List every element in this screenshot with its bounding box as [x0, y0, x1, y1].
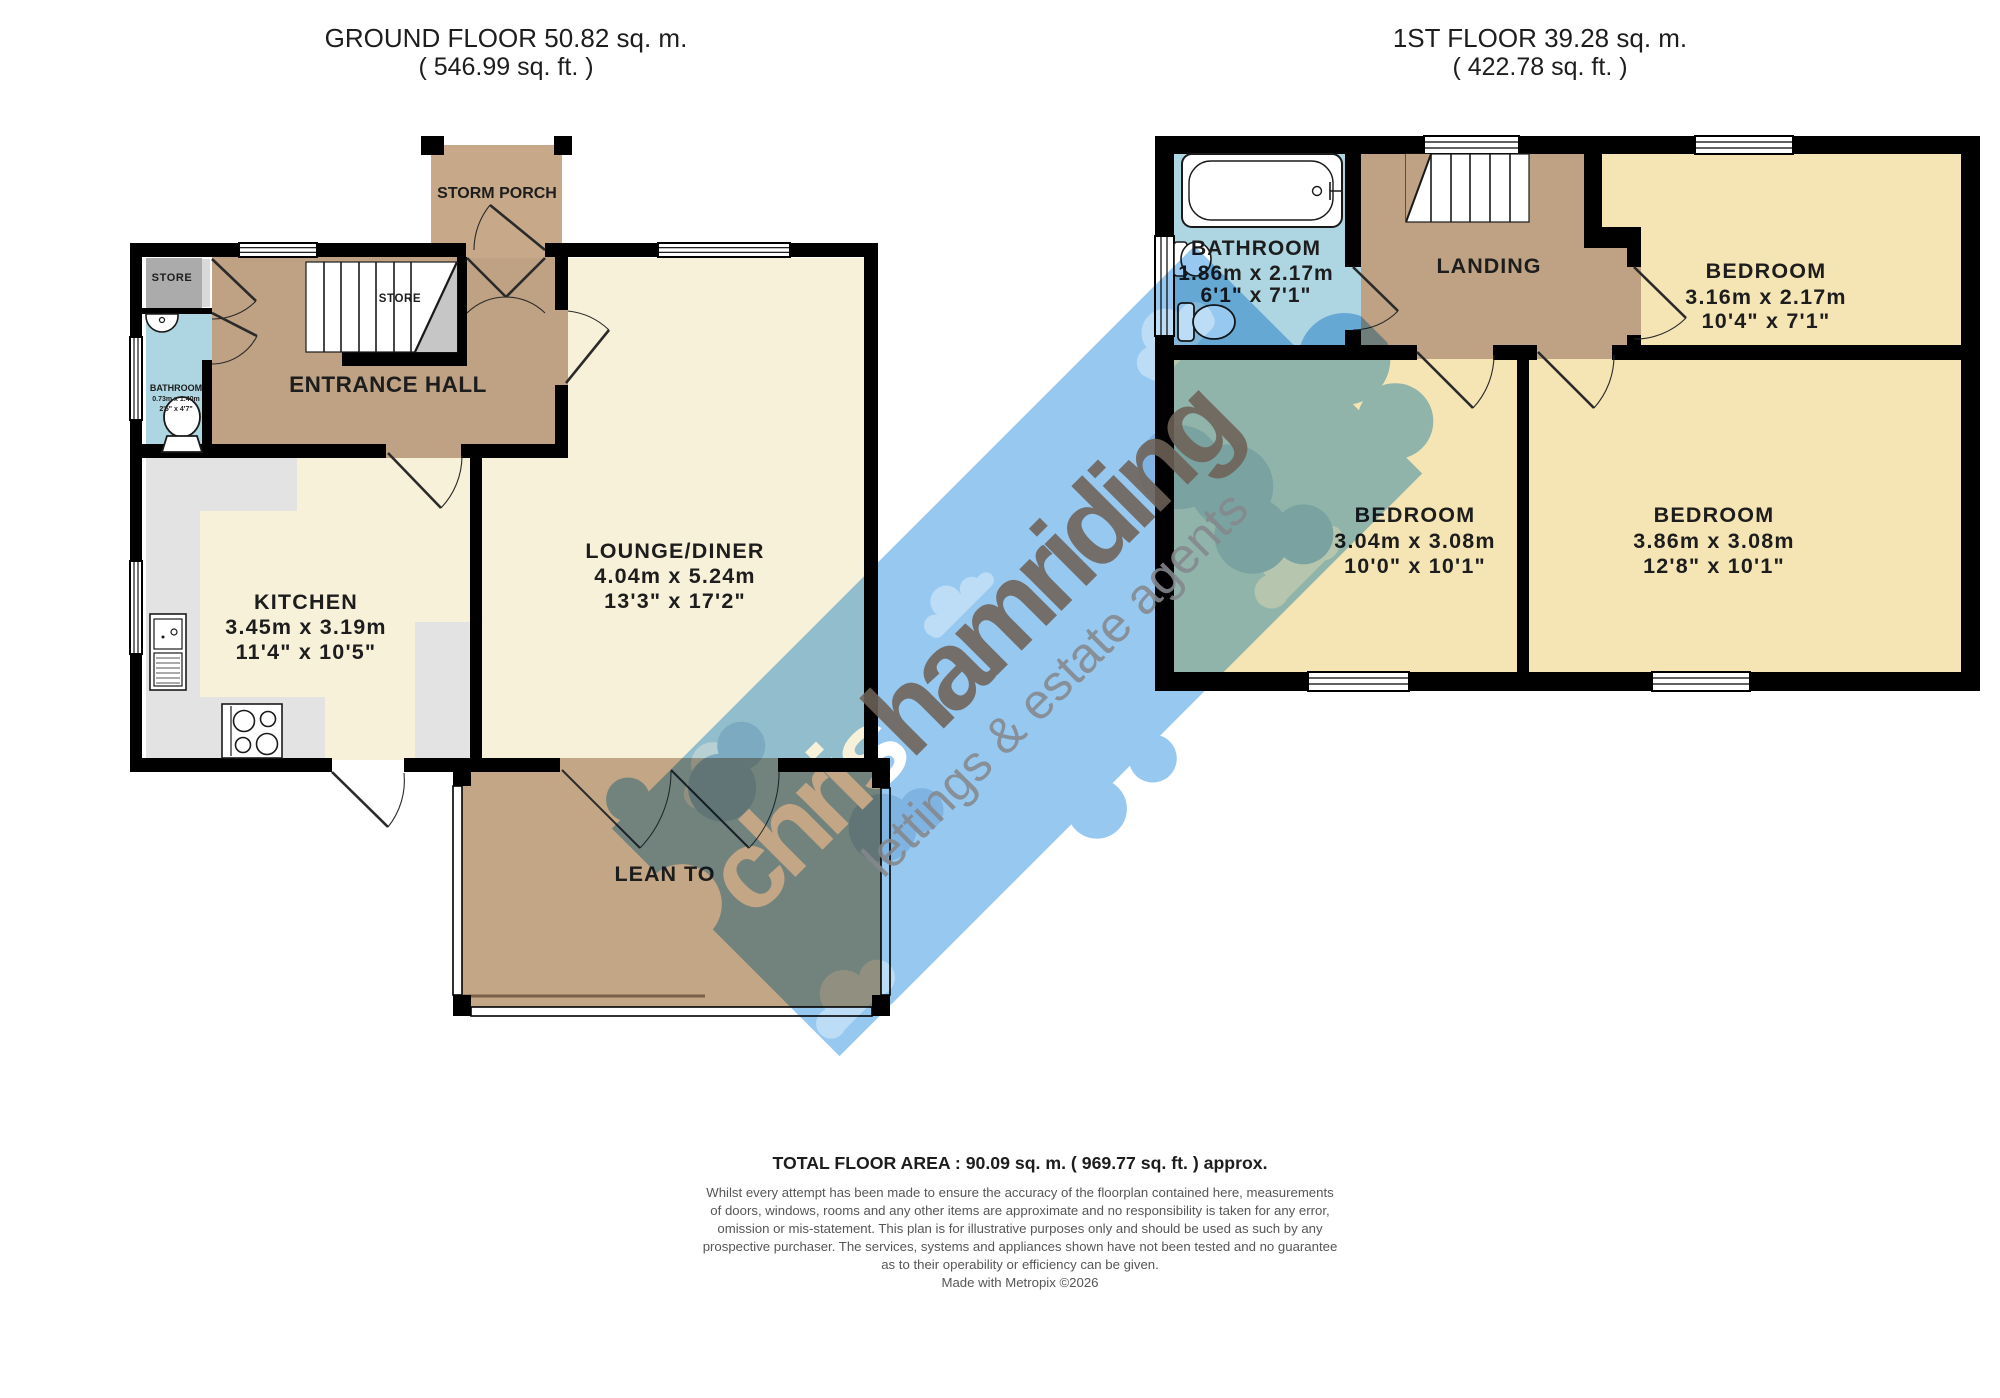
- svg-text:TOTAL FLOOR AREA : 90.09 sq. m: TOTAL FLOOR AREA : 90.09 sq. m. ( 969.77…: [772, 1153, 1267, 1173]
- svg-text:STORE: STORE: [379, 293, 421, 305]
- svg-text:3.45m x 3.19m: 3.45m x 3.19m: [225, 615, 386, 639]
- svg-text:( 546.99 sq. ft. ): ( 546.99 sq. ft. ): [418, 53, 593, 81]
- svg-text:BATHROOM: BATHROOM: [1191, 237, 1321, 260]
- svg-text:LOUNGE/DINER: LOUNGE/DINER: [585, 539, 764, 563]
- svg-text:BATHROOM: BATHROOM: [150, 383, 202, 393]
- svg-text:Made with Metropix ©2026: Made with Metropix ©2026: [941, 1275, 1098, 1290]
- svg-text:2'5" x 4'7": 2'5" x 4'7": [159, 406, 192, 413]
- svg-text:prospective purchaser. The ser: prospective purchaser. The services, sys…: [703, 1239, 1338, 1254]
- svg-text:STORE: STORE: [152, 272, 193, 284]
- svg-text:3.16m x 2.17m: 3.16m x 2.17m: [1685, 285, 1846, 309]
- svg-text:BEDROOM: BEDROOM: [1654, 503, 1775, 527]
- svg-text:GROUND FLOOR 50.82 sq. m.: GROUND FLOOR 50.82 sq. m.: [325, 23, 688, 53]
- svg-text:11'4" x 10'5": 11'4" x 10'5": [236, 640, 377, 664]
- svg-text:LANDING: LANDING: [1437, 254, 1542, 278]
- svg-text:KITCHEN: KITCHEN: [254, 590, 358, 614]
- svg-text:13'3" x 17'2": 13'3" x 17'2": [604, 589, 746, 613]
- svg-text:12'8" x 10'1": 12'8" x 10'1": [1643, 554, 1785, 578]
- svg-text:ENTRANCE HALL: ENTRANCE HALL: [289, 372, 487, 397]
- svg-text:( 422.78 sq. ft. ): ( 422.78 sq. ft. ): [1452, 53, 1627, 81]
- svg-text:omission or mis-statement. Thi: omission or mis-statement. This plan is …: [717, 1221, 1323, 1236]
- svg-text:BEDROOM: BEDROOM: [1706, 259, 1827, 283]
- svg-text:0.73m x 1.40m: 0.73m x 1.40m: [152, 396, 199, 403]
- svg-text:STORM PORCH: STORM PORCH: [437, 185, 557, 202]
- svg-text:as to their operability or eff: as to their operability or efficiency ca…: [881, 1257, 1159, 1272]
- svg-text:3.86m x 3.08m: 3.86m x 3.08m: [1633, 529, 1794, 553]
- svg-text:Whilst every attempt has been: Whilst every attempt has been made to en…: [706, 1185, 1334, 1200]
- svg-text:10'0" x 10'1": 10'0" x 10'1": [1344, 554, 1486, 578]
- svg-text:10'4" x 7'1": 10'4" x 7'1": [1702, 309, 1831, 333]
- svg-text:4.04m x 5.24m: 4.04m x 5.24m: [594, 564, 755, 588]
- svg-text:1ST FLOOR 39.28 sq. m.: 1ST FLOOR 39.28 sq. m.: [1393, 23, 1687, 53]
- svg-text:of doors, windows, rooms and a: of doors, windows, rooms and any other i…: [710, 1203, 1329, 1218]
